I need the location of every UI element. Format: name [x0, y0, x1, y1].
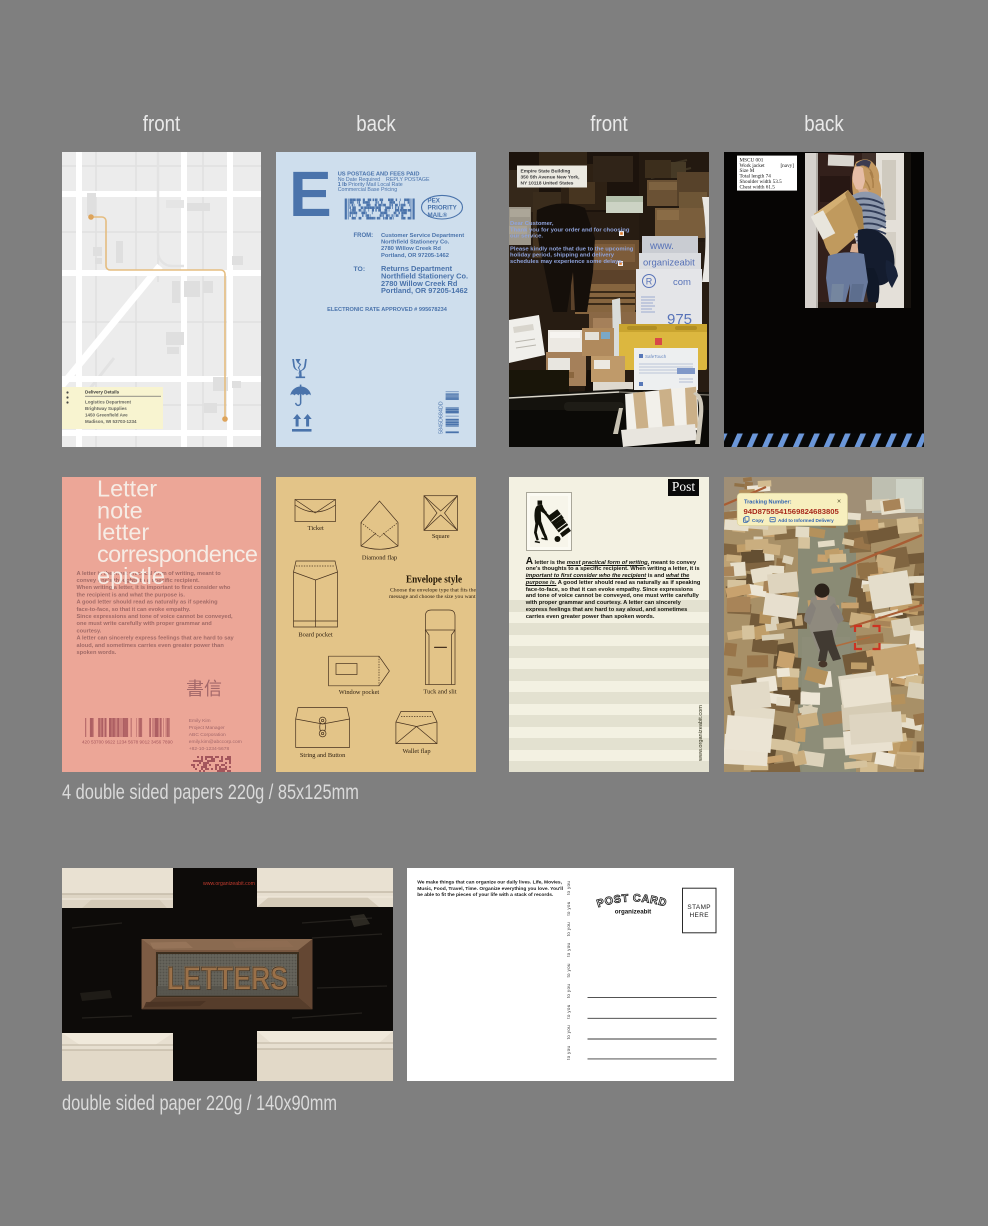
- svg-text:Commercial Base Pricing: Commercial Base Pricing: [338, 187, 398, 193]
- svg-text:Window pocket: Window pocket: [339, 689, 380, 696]
- svg-text:Chest width 61.5: Chest width 61.5: [740, 184, 776, 190]
- svg-text:Copy: Copy: [752, 518, 764, 523]
- svg-text:Since expressions and tone of: Since expressions and tone of voice cann…: [77, 614, 234, 620]
- svg-text:Diamond flap: Diamond flap: [362, 555, 397, 562]
- svg-text:schedules may experience some: schedules may experience some delays.: [510, 259, 624, 265]
- svg-text:A good letter should read as n: A good letter should read as naturally a…: [77, 600, 219, 606]
- svg-text:5845D684DD: 5845D684DD: [439, 401, 445, 434]
- svg-text:be able to fit the pieces of y: be able to fit the pieces of your life w…: [417, 892, 554, 898]
- svg-text:the recipient is and what the: the recipient is and what the purpose is…: [77, 592, 186, 598]
- svg-text:www.organizeabit.com: www.organizeabit.com: [203, 881, 255, 887]
- svg-text:1450 Greenfield Ave: 1450 Greenfield Ave: [85, 413, 128, 418]
- svg-text:ABC Corporation: ABC Corporation: [189, 732, 226, 738]
- svg-text:Choose the envelope type that: Choose the envelope type that fits the: [390, 587, 476, 594]
- svg-text:+82-10-1234-5678: +82-10-1234-5678: [189, 746, 230, 752]
- svg-text:spoken words.: spoken words.: [77, 650, 117, 656]
- svg-text:2780 Willow Creek Rd: 2780 Willow Creek Rd: [381, 246, 441, 252]
- svg-text:Dear Customer,: Dear Customer,: [510, 221, 554, 227]
- svg-text:organizeabit: organizeabit: [615, 909, 651, 916]
- svg-text:We make things that can organi: We make things that can organize our dai…: [417, 880, 562, 886]
- svg-text:94D8755541569824683805: 94D8755541569824683805: [744, 507, 840, 516]
- svg-text:Thank you for your order and f: Thank you for your order and for choosin…: [510, 227, 630, 233]
- svg-text:PEX: PEX: [428, 198, 441, 205]
- svg-text:HERE: HERE: [690, 912, 709, 919]
- svg-text:String and Button: String and Button: [300, 752, 346, 759]
- svg-text:×: ×: [837, 499, 841, 506]
- svg-text:FROM:: FROM:: [354, 233, 374, 239]
- svg-text:Envelope style: Envelope style: [406, 575, 462, 586]
- svg-text:LETTERS: LETTERS: [167, 960, 288, 996]
- svg-text:STAMP: STAMP: [687, 904, 711, 911]
- svg-text:TO:: TO:: [354, 266, 366, 273]
- svg-text:Tracking Number:: Tracking Number:: [744, 500, 792, 506]
- svg-text:350 5th Avenue New York,: 350 5th Avenue New York,: [521, 175, 581, 181]
- svg-text:ELECTRONIC RATE APPROVED # 995: ELECTRONIC RATE APPROVED # 995678234: [327, 307, 448, 313]
- svg-text:to you to you to you: to you to you to you to you to you to yo…: [566, 881, 571, 1060]
- svg-text:書信: 書信: [186, 679, 222, 699]
- svg-text:Ticket: Ticket: [308, 525, 324, 532]
- svg-text:Logistics Department: Logistics Department: [85, 400, 132, 405]
- svg-text:organizeabit: organizeabit: [643, 258, 695, 269]
- svg-text:NY 10118 United States: NY 10118 United States: [521, 181, 574, 187]
- svg-text:Portland, OR 97205-1462: Portland, OR 97205-1462: [381, 253, 449, 259]
- svg-text:Please kindly note that due to: Please kindly note that due to the upcom…: [510, 246, 634, 252]
- svg-text:message and choose the size yo: message and choose the size you want.: [389, 594, 476, 600]
- svg-text:Emily Kim: Emily Kim: [189, 718, 211, 724]
- svg-text:Madison, WI 53703-1234: Madison, WI 53703-1234: [85, 419, 137, 424]
- svg-text:Board pocket: Board pocket: [298, 632, 332, 639]
- svg-text:courtesy.: courtesy.: [77, 628, 102, 634]
- svg-text:our service.: our service.: [510, 234, 543, 240]
- svg-text:holiday period, shipping and d: holiday period, shipping and delivery: [510, 253, 615, 259]
- svg-text:aloud, and sometimes carries e: aloud, and sometimes carries even greate…: [77, 643, 225, 649]
- svg-text:Portland, OR 97205-1462: Portland, OR 97205-1462: [381, 286, 468, 295]
- svg-text:Add to Informed Delivery: Add to Informed Delivery: [778, 518, 834, 523]
- svg-text:[navy]: [navy]: [780, 163, 794, 169]
- svg-text:emily.kim@abccorp.com: emily.kim@abccorp.com: [189, 739, 242, 745]
- svg-text:PRIORITY: PRIORITY: [428, 205, 458, 212]
- svg-text:Empire State Building: Empire State Building: [521, 169, 571, 175]
- svg-text:Northfield Stationery Co.: Northfield Stationery Co.: [381, 240, 450, 246]
- svg-text:Tuck and slit: Tuck and slit: [423, 689, 456, 696]
- svg-text:one must write carefully with: one must write carefully with proper gra…: [77, 621, 213, 627]
- svg-text:MAIL®: MAIL®: [428, 212, 448, 219]
- svg-text:Delivery Details: Delivery Details: [85, 390, 120, 395]
- svg-text:Music, Food, Travel, Time. Org: Music, Food, Travel, Time. Organize ever…: [417, 886, 563, 892]
- svg-text:Square: Square: [432, 533, 450, 540]
- svg-text:face-to-face, so that it can e: face-to-face, so that it can evoke empat…: [77, 607, 191, 613]
- svg-text:R: R: [646, 276, 653, 286]
- svg-text:Project Manager: Project Manager: [189, 725, 225, 731]
- svg-text:www.: www.: [649, 241, 674, 252]
- svg-text:Customer Service Department: Customer Service Department: [381, 233, 464, 239]
- svg-text:E: E: [289, 158, 332, 230]
- svg-text:Wallet flap: Wallet flap: [402, 748, 430, 755]
- svg-text:420 53700 9622 1234 5678 9012: 420 53700 9622 1234 5678 9012 3456 7890: [82, 740, 173, 745]
- svg-text:epistle: epistle: [97, 563, 165, 589]
- svg-text:SafeTouch: SafeTouch: [645, 354, 667, 359]
- svg-text:Brightway Supplies: Brightway Supplies: [85, 406, 127, 411]
- svg-text:com: com: [673, 277, 691, 288]
- svg-text:A letter can sincerely express: A letter can sincerely express feelings …: [77, 636, 235, 642]
